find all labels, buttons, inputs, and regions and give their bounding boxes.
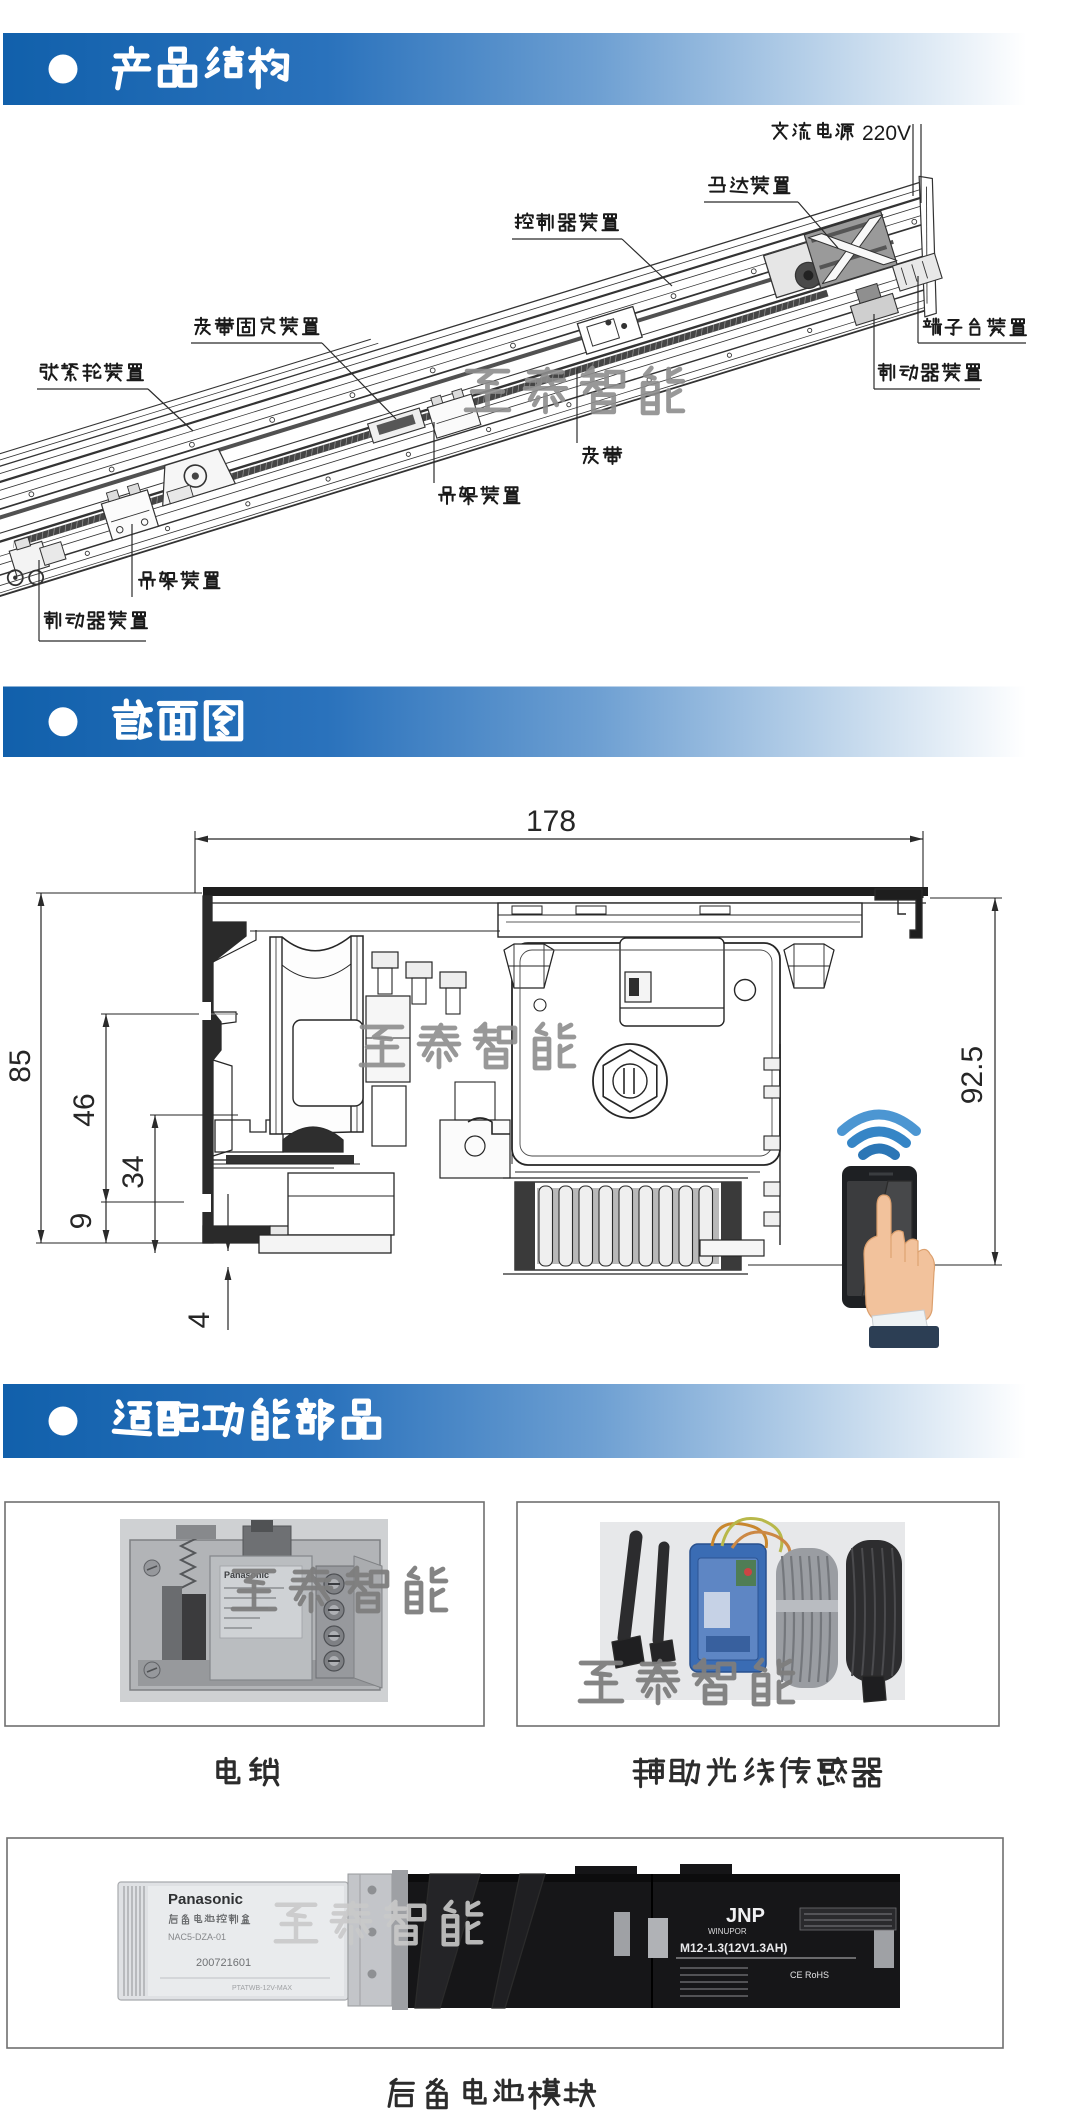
svg-text:NAC5-DZA-01: NAC5-DZA-01 (168, 1932, 226, 1942)
svg-text:92.5: 92.5 (956, 1046, 989, 1104)
svg-text:178: 178 (526, 805, 576, 838)
svg-text:46: 46 (68, 1093, 101, 1126)
svg-text:220V: 220V (862, 122, 911, 145)
svg-text:34: 34 (117, 1155, 150, 1188)
svg-text:85: 85 (4, 1049, 37, 1082)
svg-text:200721601: 200721601 (196, 1957, 251, 1969)
svg-text:M12-1.3(12V1.3AH): M12-1.3(12V1.3AH) (680, 1941, 787, 1955)
svg-text:4: 4 (183, 1312, 216, 1329)
svg-text:PTATWB-12V-MAX: PTATWB-12V-MAX (232, 1985, 292, 1992)
svg-text:9: 9 (65, 1213, 98, 1230)
svg-text:CE RoHS: CE RoHS (790, 1970, 829, 1980)
svg-text:JNP: JNP (726, 1905, 765, 1927)
svg-text:WINUPOR: WINUPOR (708, 1927, 747, 1936)
svg-text:Panasonic: Panasonic (168, 1891, 243, 1908)
